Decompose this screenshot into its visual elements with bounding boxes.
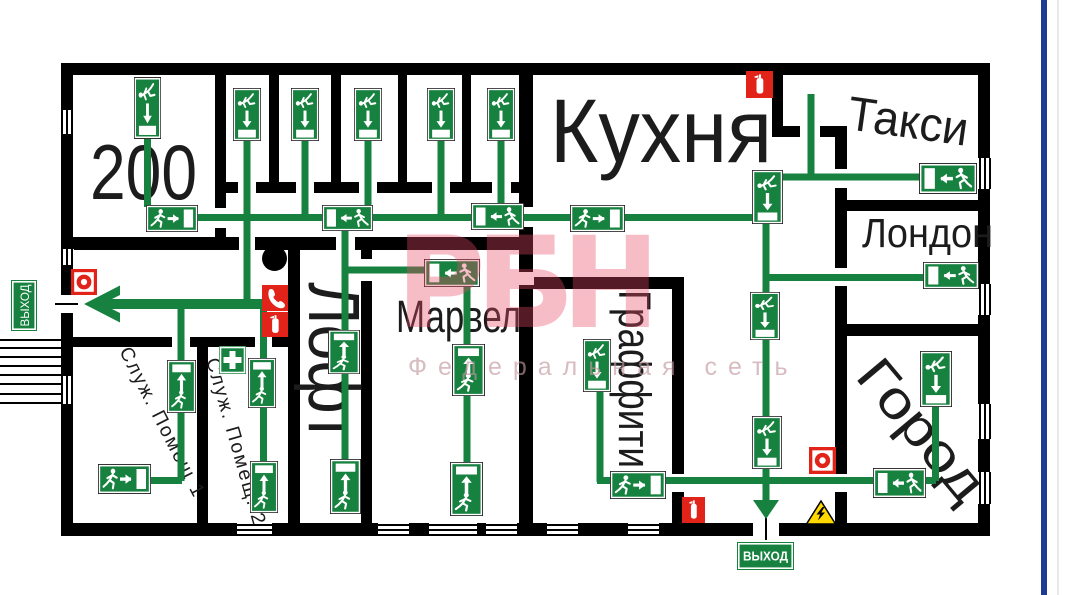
svg-text:ВЫХОД: ВЫХОД <box>743 549 789 564</box>
svg-text:РБН: РБН <box>402 212 654 351</box>
svg-text:Кухня: Кухня <box>550 82 772 182</box>
svg-text:200: 200 <box>90 128 197 216</box>
svg-text:Федеральная сеть: Федеральная сеть <box>408 353 799 381</box>
svg-text:Лондон: Лондон <box>862 210 993 256</box>
svg-text:ВЫХОД: ВЫХОД <box>18 285 32 327</box>
